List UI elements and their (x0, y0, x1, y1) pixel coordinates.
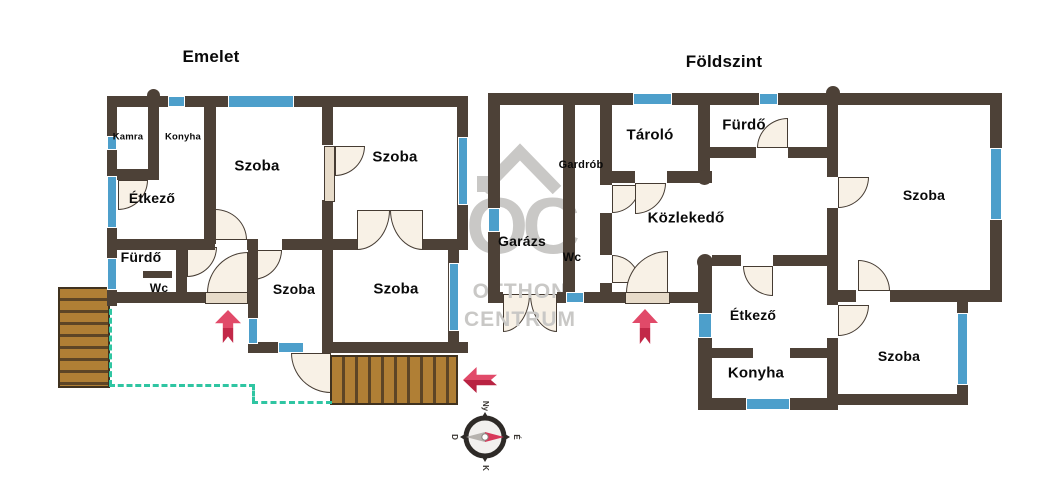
room-label-furdo-foldszint: Fürdő (722, 117, 766, 134)
door-leaf-szoba2 (324, 146, 335, 202)
double-door-szoba-right-half (390, 210, 423, 250)
terrace-outline-bottom2 (252, 401, 332, 404)
room-label-etkezo-emelet: Étkező (129, 190, 175, 206)
wall-etkezo-konyha-a (698, 348, 753, 358)
room-label-gardrob: Gardrób (559, 159, 604, 171)
terrace-outline-left (109, 300, 112, 386)
entrance-arrow-emelet (215, 310, 241, 343)
wall-szoba-bottom-b (331, 342, 468, 353)
window-garazs-left (488, 208, 500, 232)
room-label-szoba3: Szoba (273, 281, 315, 297)
room-label-etkezo-foldszint: Étkező (730, 307, 776, 323)
room-label-wc-emelet: Wc (150, 281, 168, 295)
wall-etkezo-top-a (712, 255, 741, 266)
floor-plan-page: { "floors": { "emelet": { "title": "Emel… (0, 0, 1040, 500)
wall-szobakis-bottom (838, 394, 968, 405)
door-leaf-entry-foldszint (625, 292, 670, 304)
room-label-szoba1: Szoba (234, 158, 279, 175)
wall-foldszint-top (488, 93, 1002, 105)
window-konyha-bottom (746, 398, 790, 410)
door-arc-szoba1 (215, 209, 247, 240)
window-szoba4-right (449, 263, 459, 331)
wall-szoba-divider-upper (322, 96, 333, 145)
wall-tarolo-bottom-b (667, 171, 712, 183)
room-label-furdo-emelet: Fürdő (121, 249, 162, 265)
door-arc-etkezo-foldszint (743, 266, 773, 296)
window-szoba2-right (458, 137, 468, 205)
room-label-garazs: Garázs (498, 233, 546, 249)
wall-foldszint-left (488, 93, 500, 303)
wall-szobanagy-bottom-a (838, 290, 856, 302)
window-etkezo-left (107, 176, 117, 228)
wall-konyha-right (204, 96, 216, 244)
door-arc-szobakis (838, 305, 869, 336)
room-label-tarolo: Tároló (626, 127, 673, 144)
wall-szoba-divider-lower (322, 200, 333, 353)
wall-etkezo-top-b (773, 255, 838, 266)
wall-emelet-right-step (448, 239, 468, 250)
window-szobakis-right (957, 313, 968, 385)
door-leaf-entry-emelet (205, 292, 248, 304)
compass-label-right: É (512, 434, 521, 440)
room-label-kozlekedo: Közlekedő (648, 210, 725, 227)
deck-stairs-left (58, 287, 110, 388)
wall-gardrob-right-a (600, 105, 612, 185)
room-label-szoba2: Szoba (372, 149, 417, 166)
wall-mid-divider-a (827, 93, 838, 177)
floor-title-foldszint: Földszint (686, 52, 762, 72)
terrace-arrow-left (463, 367, 497, 393)
compass-label-bottom: K (481, 465, 490, 471)
window-tarolo-top (633, 93, 672, 105)
wall-tarolo-bottom-a (612, 171, 635, 183)
entrance-arrow-foldszint (632, 309, 658, 344)
room-label-wc-foldszint: Wc (563, 250, 581, 264)
door-arc-szoba2 (335, 146, 365, 176)
deck-terrace-right (330, 355, 458, 405)
window-szoba3-left (248, 318, 258, 344)
wall-foldszint-bottom-a (488, 292, 503, 303)
door-arc-szoba-szoba (858, 260, 890, 291)
window-szoba1-top (228, 95, 294, 108)
double-door-szoba-left-half (357, 210, 390, 250)
room-label-szoba4: Szoba (373, 281, 418, 298)
window-szoba3-bottom (278, 342, 304, 353)
compass-label-top: Ny (481, 401, 490, 412)
room-label-konyha-emelet: Konyha (165, 132, 201, 143)
wall-wc-divider (143, 271, 172, 278)
door-arc-szobanagy (838, 177, 869, 208)
wall-kamra-right (148, 96, 159, 180)
watermark-text-line2: CENTRUM (458, 308, 582, 332)
compass-label-left: D (450, 434, 459, 440)
room-label-konyha-foldszint: Konyha (728, 365, 784, 382)
window-furdo-left (107, 258, 117, 290)
window-konyha-top (168, 96, 185, 107)
wall-szoba1-bottom (282, 239, 357, 250)
door-arc-terrace (291, 353, 331, 393)
floor-title-emelet: Emelet (183, 47, 240, 67)
door-arc-entry-foldszint (626, 251, 668, 293)
window-furdo-top (759, 93, 778, 105)
window-etkezo-left-foldszint (698, 313, 712, 338)
room-label-szoba-kis: Szoba (878, 348, 920, 364)
room-label-kamra: Kamra (113, 132, 144, 143)
compass-rose-icon: Ny É K D (448, 400, 522, 474)
wall-furdo-bottom-a (710, 147, 756, 158)
window-szobanagy-right (990, 148, 1002, 220)
window-wc-bottom (566, 292, 584, 303)
terrace-outline-bottom1 (109, 384, 255, 387)
wall-etkezo-konyha-b (790, 348, 838, 358)
room-label-szoba-nagy: Szoba (903, 187, 945, 203)
wall-garazs-right (563, 105, 575, 303)
wall-gardrob-right-b (600, 213, 612, 255)
wall-szoba2-bottom (423, 239, 448, 250)
wall-szobanagy-bottom-b (890, 290, 1002, 302)
